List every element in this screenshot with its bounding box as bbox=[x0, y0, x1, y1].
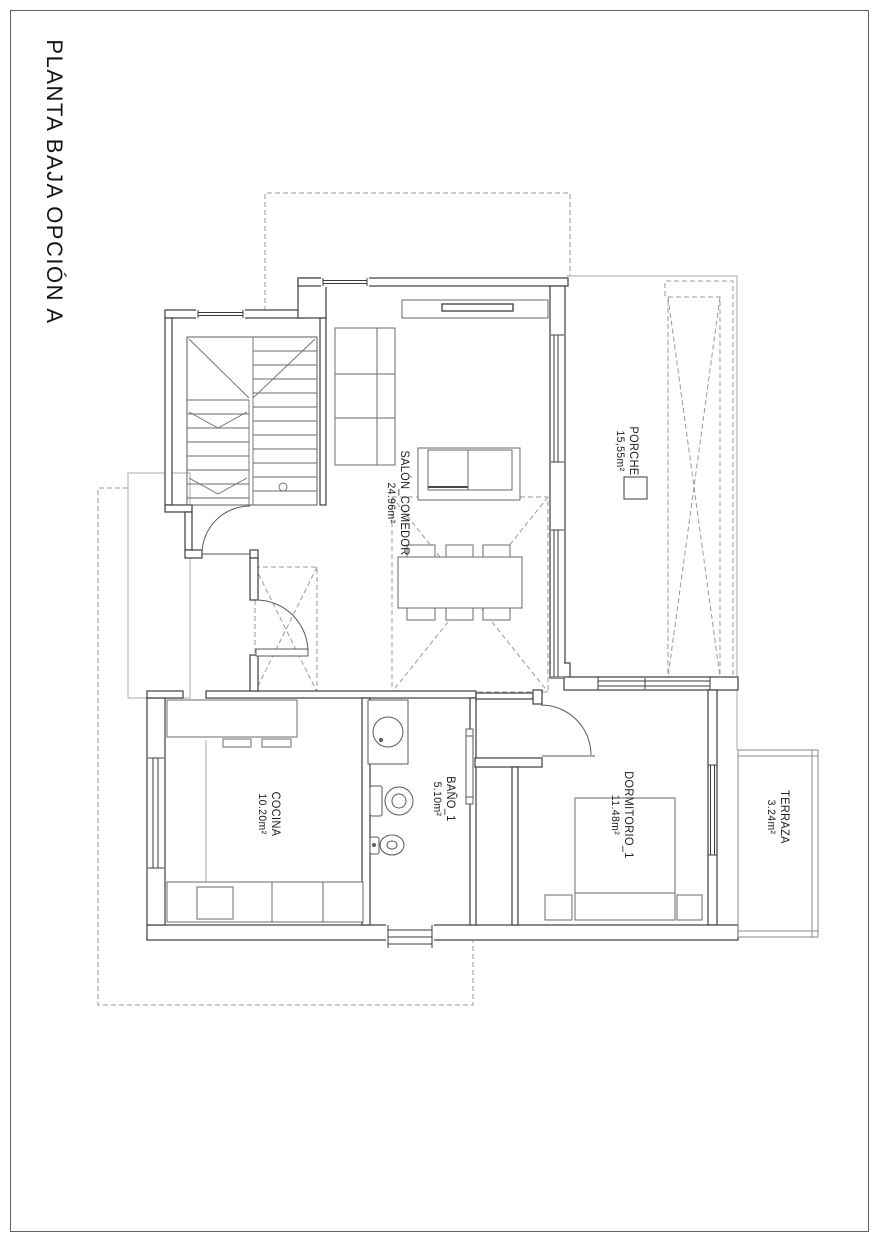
bathroom-fixtures bbox=[368, 700, 413, 855]
plan-sheet: PLANTA BAJA OPCIÓN A SALÓN_COMEDOR 24.96… bbox=[0, 0, 878, 1241]
room-name: SALÓN_COMEDOR bbox=[397, 450, 411, 555]
room-area: 3.24m² bbox=[763, 790, 777, 844]
room-name: BAÑO_1 bbox=[443, 776, 457, 821]
room-label-salon-comedor: SALÓN_COMEDOR 24.96m² bbox=[383, 450, 411, 555]
room-area: 15,55m² bbox=[612, 426, 626, 475]
coffee-table bbox=[418, 448, 520, 500]
page-title: PLANTA BAJA OPCIÓN A bbox=[41, 39, 67, 324]
porch-pergola-outline bbox=[665, 281, 733, 677]
sofa bbox=[335, 328, 395, 465]
room-name: COCINA bbox=[268, 792, 282, 837]
room-area: 11.48m² bbox=[607, 771, 621, 859]
room-area: 5.10m² bbox=[429, 776, 443, 821]
toilet bbox=[370, 786, 413, 816]
room-name: DORMITORIO_1 bbox=[621, 771, 635, 859]
room-label-dormitorio-1: DORMITORIO_1 11.48m² bbox=[607, 771, 635, 859]
sink-vanity bbox=[368, 700, 408, 764]
room-name: TERRAZA bbox=[777, 790, 791, 844]
entry-canopy-outline bbox=[255, 567, 317, 692]
porch-column bbox=[624, 477, 647, 499]
bidet bbox=[370, 835, 404, 855]
room-label-porche: PORCHE 15,55m² bbox=[612, 426, 640, 475]
room-name: PORCHE bbox=[626, 426, 640, 475]
floor-plan-drawing bbox=[0, 0, 878, 1241]
room-area: 24.96m² bbox=[383, 450, 397, 555]
room-area: 10.20m² bbox=[254, 792, 268, 837]
room-label-terraza: TERRAZA 3.24m² bbox=[763, 790, 791, 844]
room-label-cocina: COCINA 10.20m² bbox=[254, 792, 282, 837]
dining-set bbox=[398, 545, 522, 620]
staircase bbox=[187, 337, 317, 505]
tv-unit bbox=[402, 300, 548, 318]
room-label-bano-1: BAÑO_1 5.10m² bbox=[429, 776, 457, 821]
